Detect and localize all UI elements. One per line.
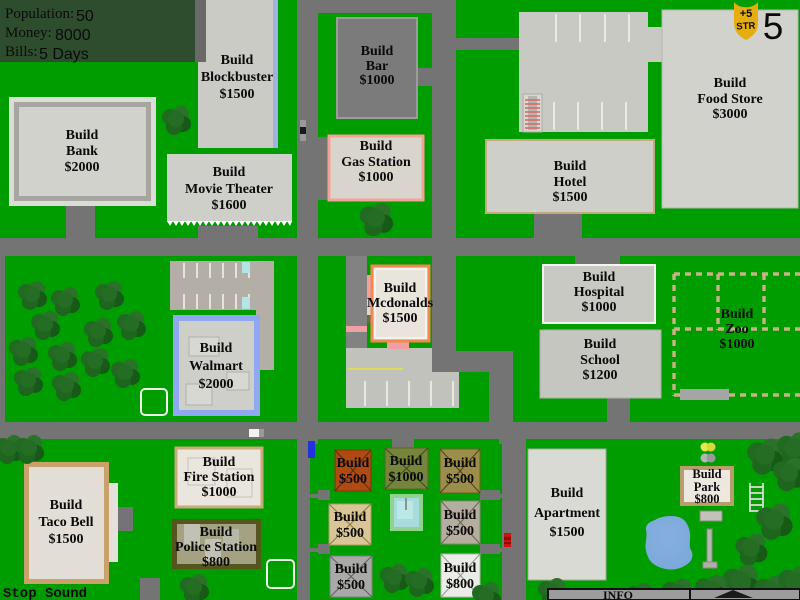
svg-text:Apartment: Apartment xyxy=(534,506,600,521)
svg-text:$1000: $1000 xyxy=(389,470,424,485)
svg-text:50: 50 xyxy=(76,8,94,25)
svg-text:Fire Station: Fire Station xyxy=(184,470,255,485)
svg-text:$3000: $3000 xyxy=(713,107,748,122)
svg-text:$1000: $1000 xyxy=(360,73,395,88)
svg-text:$1000: $1000 xyxy=(720,337,755,352)
svg-text:School: School xyxy=(580,353,620,368)
svg-text:Zoo: Zoo xyxy=(725,322,748,337)
svg-text:Build: Build xyxy=(337,456,370,471)
svg-text:Build: Build xyxy=(66,128,99,143)
svg-text:Build: Build xyxy=(334,510,367,525)
svg-text:Hotel: Hotel xyxy=(554,175,587,190)
svg-text:Build: Build xyxy=(444,456,477,471)
svg-text:$800: $800 xyxy=(202,555,230,570)
svg-text:$1000: $1000 xyxy=(202,485,237,500)
svg-text:$500: $500 xyxy=(339,472,367,487)
svg-text:Build: Build xyxy=(221,53,254,68)
svg-text:Build: Build xyxy=(360,139,393,154)
svg-text:Build: Build xyxy=(584,337,617,352)
svg-text:Build: Build xyxy=(203,455,236,470)
svg-text:$500: $500 xyxy=(336,526,364,541)
svg-text:Population:: Population: xyxy=(5,6,74,22)
svg-text:Build: Build xyxy=(551,486,584,501)
svg-text:Police Station: Police Station xyxy=(175,540,257,555)
svg-text:$1500: $1500 xyxy=(220,87,255,102)
svg-text:Build: Build xyxy=(714,76,747,91)
svg-text:Taco Bell: Taco Bell xyxy=(38,515,93,530)
svg-text:Food Store: Food Store xyxy=(697,92,762,107)
svg-text:STR: STR xyxy=(736,21,756,33)
svg-text:Build: Build xyxy=(200,525,233,540)
svg-text:5: 5 xyxy=(763,6,784,47)
svg-text:Build: Build xyxy=(213,165,246,180)
svg-text:Build: Build xyxy=(444,508,477,523)
svg-text:$800: $800 xyxy=(446,577,474,592)
svg-text:Stop Sound: Stop Sound xyxy=(3,586,87,600)
svg-text:Movie Theater: Movie Theater xyxy=(185,182,273,197)
svg-text:Gas Station: Gas Station xyxy=(341,155,411,170)
svg-text:5 Days: 5 Days xyxy=(39,46,89,63)
svg-text:8000: 8000 xyxy=(55,27,91,44)
svg-text:Walmart: Walmart xyxy=(189,359,243,374)
svg-text:Build: Build xyxy=(721,307,754,322)
svg-text:Build: Build xyxy=(200,341,233,356)
svg-text:Build: Build xyxy=(444,561,477,576)
svg-text:$500: $500 xyxy=(446,524,474,539)
svg-text:$800: $800 xyxy=(695,492,720,506)
svg-text:Money:: Money: xyxy=(5,25,52,41)
svg-text:Mcdonalds: Mcdonalds xyxy=(367,296,434,311)
svg-text:$1500: $1500 xyxy=(383,311,418,326)
svg-text:Build: Build xyxy=(583,270,616,285)
svg-text:$1600: $1600 xyxy=(212,198,247,213)
svg-text:Build: Build xyxy=(692,467,721,481)
svg-text:$500: $500 xyxy=(337,578,365,593)
svg-text:Blockbuster: Blockbuster xyxy=(201,70,273,85)
svg-text:$500: $500 xyxy=(446,472,474,487)
svg-text:$1500: $1500 xyxy=(550,525,585,540)
svg-text:Build: Build xyxy=(390,454,423,469)
svg-text:$1000: $1000 xyxy=(582,300,617,315)
svg-text:Build: Build xyxy=(50,498,83,513)
svg-text:$2000: $2000 xyxy=(199,377,234,392)
svg-text:Bar: Bar xyxy=(366,59,389,74)
svg-text:INFO: INFO xyxy=(603,588,633,600)
svg-text:$1200: $1200 xyxy=(583,368,618,383)
svg-text:+5: +5 xyxy=(740,8,753,20)
svg-text:Build: Build xyxy=(335,562,368,577)
svg-text:Build: Build xyxy=(554,159,587,174)
svg-text:$1500: $1500 xyxy=(553,190,588,205)
svg-text:Build: Build xyxy=(361,44,394,59)
svg-text:Build: Build xyxy=(384,281,417,296)
svg-text:$1000: $1000 xyxy=(359,170,394,185)
svg-text:Bank: Bank xyxy=(66,144,98,159)
svg-text:$1500: $1500 xyxy=(49,532,84,547)
svg-text:$2000: $2000 xyxy=(65,160,100,175)
svg-text:Bills:: Bills: xyxy=(5,44,38,60)
svg-text:Hospital: Hospital xyxy=(574,285,625,300)
